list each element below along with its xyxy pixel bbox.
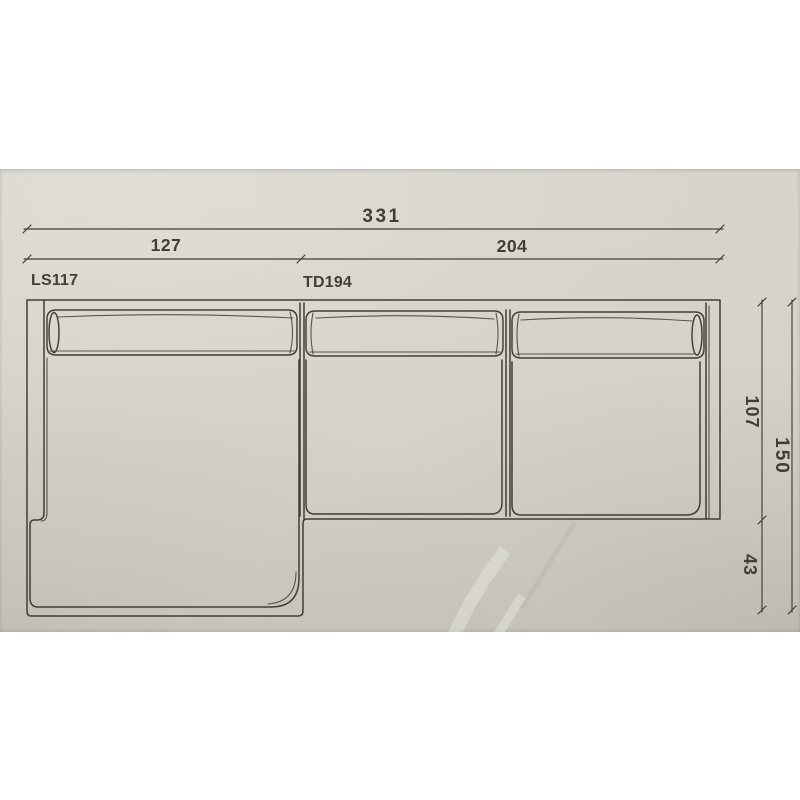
light-streak-2 [497, 596, 522, 632]
dim-ticks-horizontal [23, 225, 724, 263]
technical-drawing-photo: 331 127 204 107 150 43 LS117 TD194 [0, 169, 800, 632]
horizontal-dimensions [23, 225, 724, 263]
back-cushion-chaise-roll [49, 313, 59, 353]
dim-label-total-width: 331 [362, 206, 401, 227]
module-label-sofa: TD194 [303, 274, 352, 291]
paper-artifacts [451, 522, 575, 632]
middle-seat-cushion [306, 360, 502, 514]
back-cushion-right-top-seam [521, 318, 692, 321]
dim-label-total-depth: 150 [771, 437, 792, 475]
sofa-outer-boundary [27, 300, 720, 616]
page: { "theme": { "page-bg": "#ffffff", "pape… [0, 0, 800, 800]
sofa-outline [27, 300, 720, 616]
back-cushion-middle-left-seam [311, 313, 313, 354]
back-cushion-chaise-top-seam [58, 315, 293, 318]
divider-middle-right [506, 310, 510, 516]
dim-label-sofa-depth: 107 [742, 395, 762, 428]
right-seat-cushion [512, 362, 700, 515]
dim-label-chaise-width: 127 [151, 235, 182, 255]
faint-crease [522, 522, 575, 608]
light-streak [451, 550, 505, 632]
back-cushion-right-roll [692, 315, 702, 355]
module-label-chaise: LS117 [31, 272, 78, 289]
dim-label-chaise-extension: 43 [740, 554, 760, 576]
divider-chaise-middle [300, 303, 304, 519]
back-cushion-right-left-seam [517, 314, 519, 356]
back-cushions [47, 310, 704, 358]
back-cushion-middle-right-seam [496, 313, 498, 354]
dim-label-sofa-width: 204 [497, 236, 528, 256]
left-arm-and-chaise-cushion [30, 300, 299, 607]
sofa-plan-drawing: 331 127 204 107 150 43 LS117 TD194 [0, 169, 800, 632]
back-cushion-middle-top-seam [316, 316, 494, 319]
